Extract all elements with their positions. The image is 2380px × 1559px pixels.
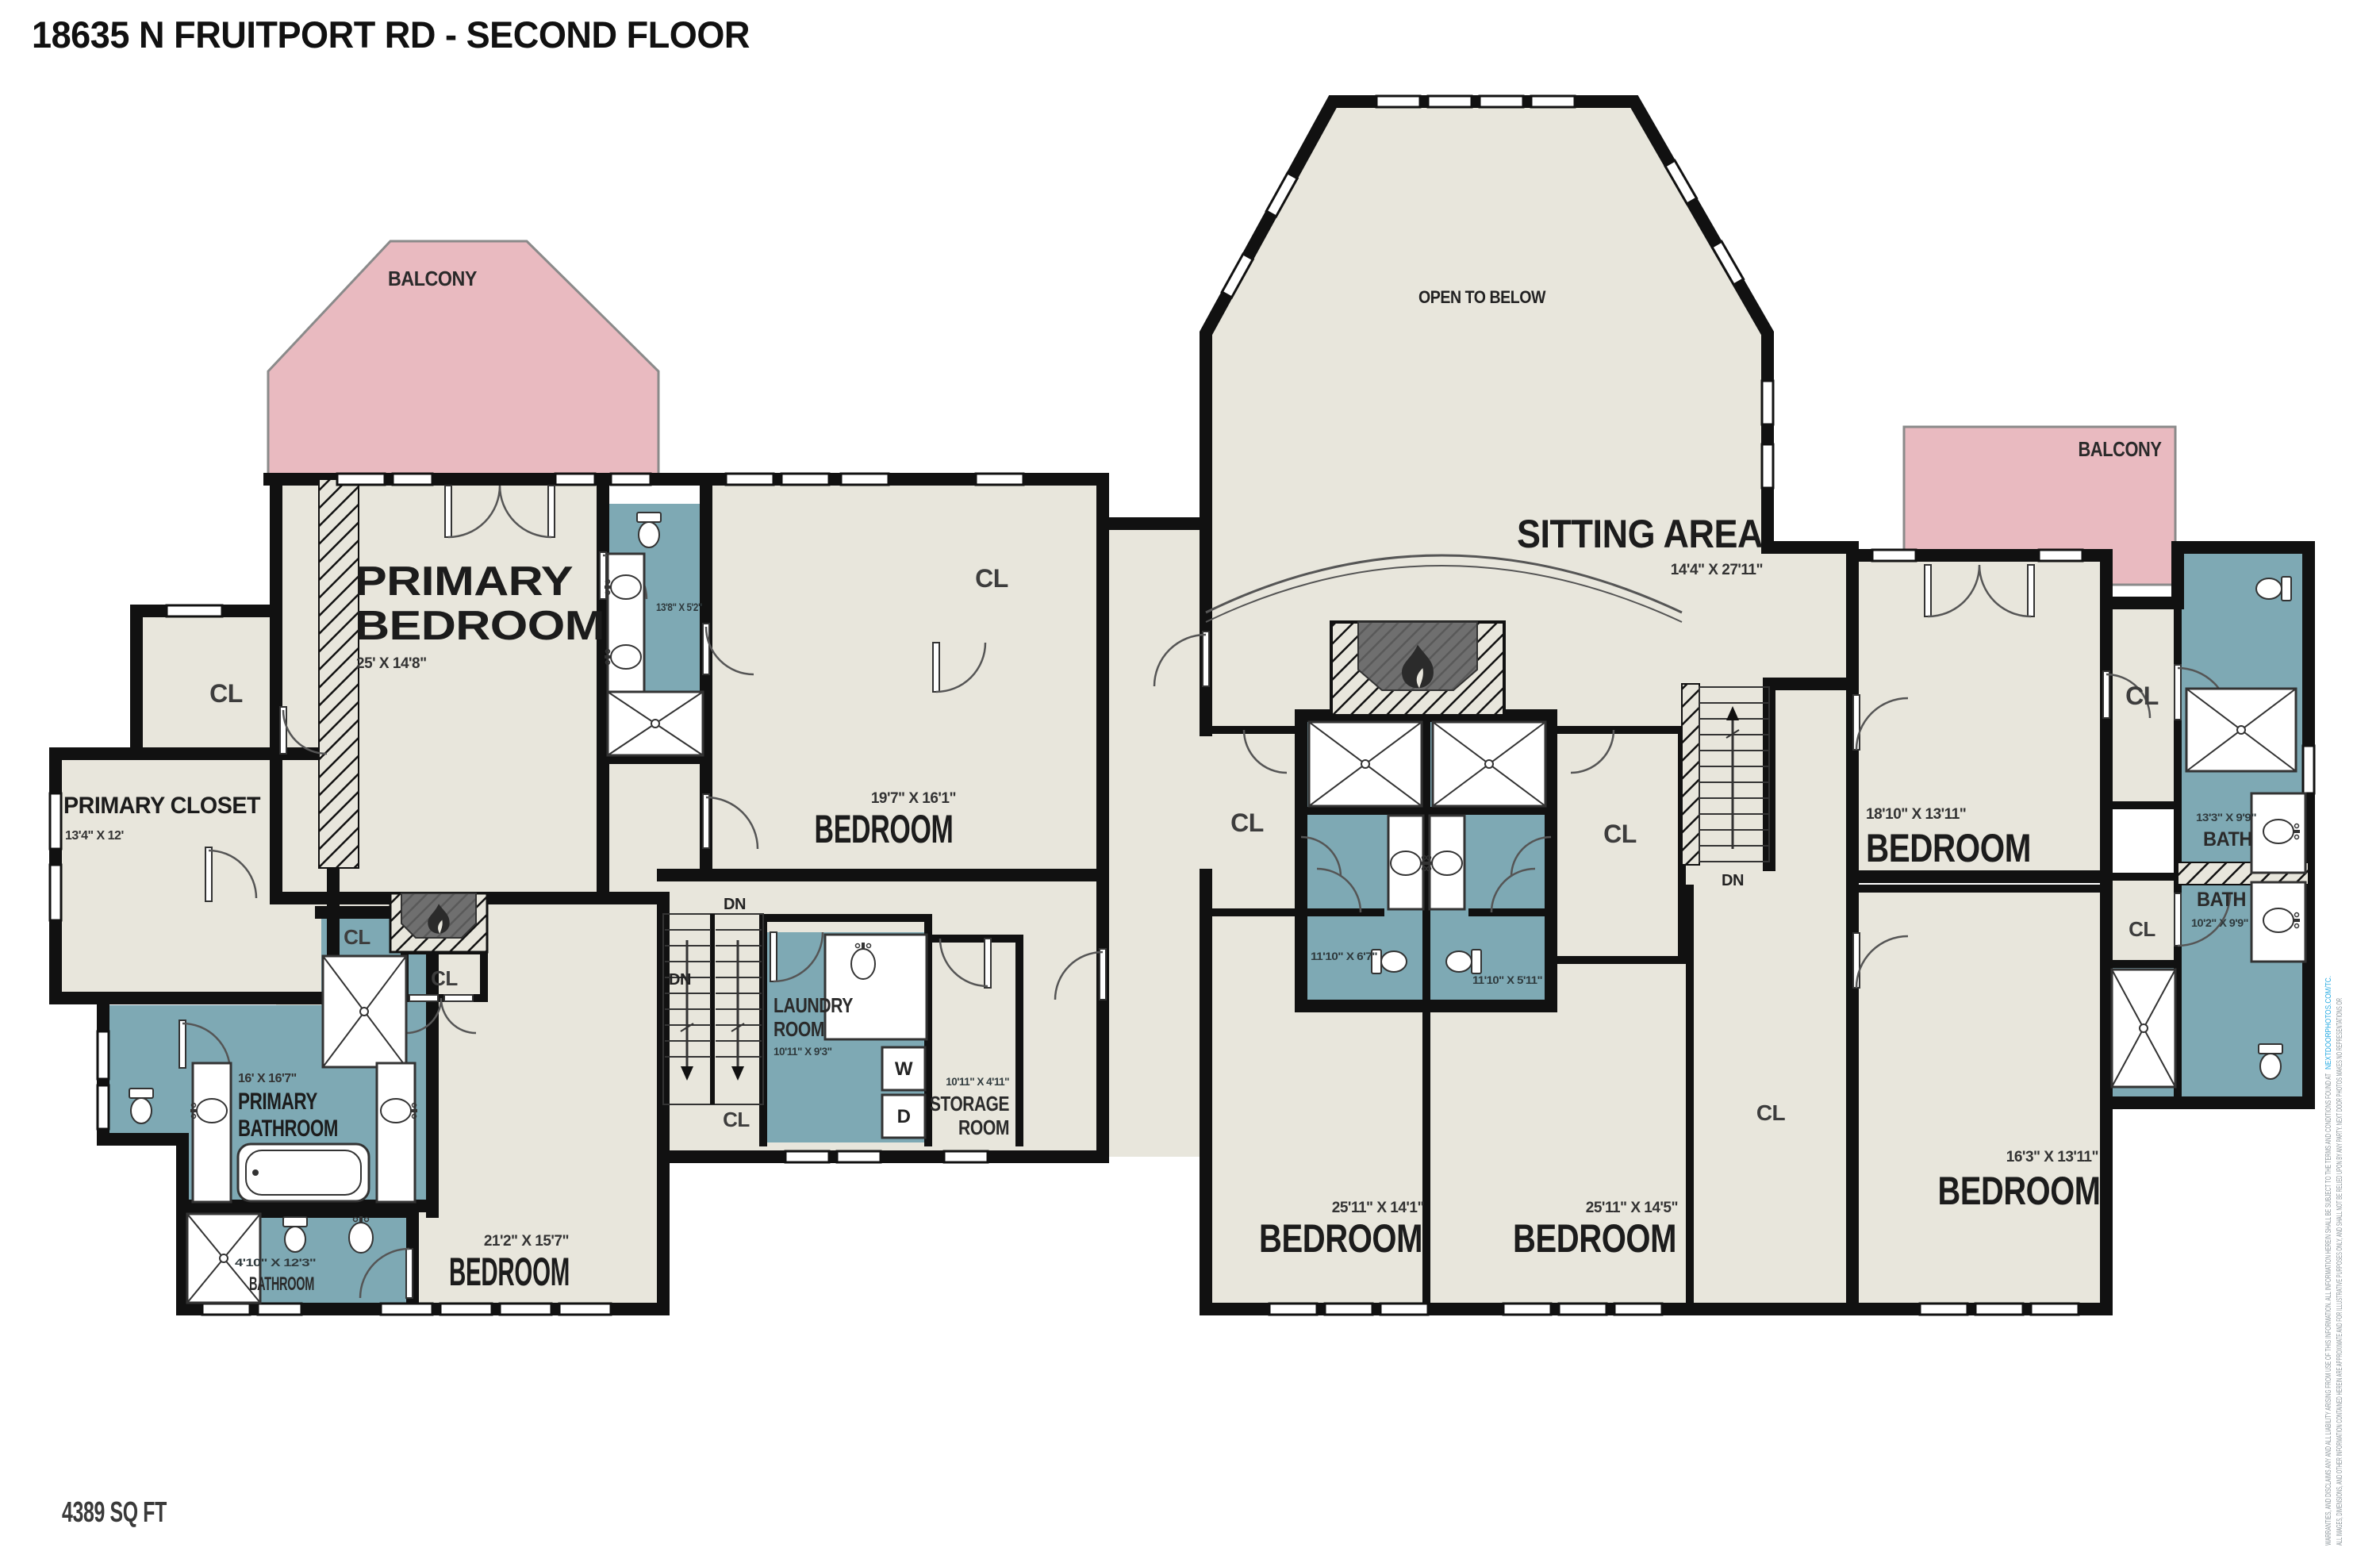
hatch-wall-left xyxy=(319,479,359,868)
ensuite-bath-dims: 13'8" X 5'2" xyxy=(656,601,702,613)
storage-label-2: ROOM xyxy=(958,1115,1009,1139)
laundry-label-2: ROOM xyxy=(773,1017,824,1041)
disclaimer-link: NEXTDOORPHOTOS.COM/TC. xyxy=(2324,976,2333,1069)
page-title: 18635 N FRUITPORT RD - SECOND FLOOR xyxy=(32,13,750,56)
bedroom-tm-dims: 19'7" X 16'1" xyxy=(871,790,956,807)
fireplace-primary xyxy=(390,893,487,952)
primary-closet-dims: 13'4" X 12' xyxy=(65,829,124,843)
cl-label: CL xyxy=(2125,682,2159,710)
storage-dims: 10'11" X 4'11" xyxy=(946,1076,1009,1088)
bedroom-bl-label: BEDROOM xyxy=(449,1250,570,1294)
cl-label: CL xyxy=(431,966,458,990)
balcony-left-label: BALCONY xyxy=(388,267,477,290)
bathtub-icon xyxy=(238,1144,369,1201)
room-bedroom-bottom-right xyxy=(1856,889,2106,1309)
bathroom-small-label: BATHROOM xyxy=(249,1273,314,1295)
laundry-counter xyxy=(825,935,927,1039)
toilet-icon xyxy=(637,513,661,547)
shower-icon xyxy=(608,692,703,755)
cl-label: CL xyxy=(1230,808,1264,837)
bedroom-bm2-label: BEDROOM xyxy=(1513,1216,1676,1261)
bath-right-lower-dims: 10'2" X 9'9" xyxy=(2191,917,2248,929)
toilet-icon xyxy=(2256,577,2291,601)
primary-bedroom-dims: 25' X 14'8" xyxy=(356,655,427,672)
bedroom-tm-label: BEDROOM xyxy=(815,807,954,851)
sitting-area-dims: 14'4" X 27'11" xyxy=(1671,562,1763,578)
vanity xyxy=(193,1063,231,1202)
fireplace-center xyxy=(1331,622,1504,716)
bath-right-upper-dims: 13'3" X 9'9" xyxy=(2196,812,2256,824)
balcony-right-label: BALCONY xyxy=(2079,437,2162,461)
shower-icon xyxy=(323,956,406,1067)
bedroom-br-dims: 16'3" X 13'11" xyxy=(2006,1149,2098,1165)
shower-icon xyxy=(2112,970,2175,1087)
washer-label: W xyxy=(895,1058,913,1080)
bedroom-bm1-dims: 25'11" X 14'1" xyxy=(1332,1200,1424,1216)
primary-closet-label: PRIMARY CLOSET xyxy=(63,793,260,819)
shower-icon xyxy=(1433,722,1545,806)
bedroom-bl-dims: 21'2" X 15'7" xyxy=(484,1233,569,1250)
storage-label-1: STORAGE xyxy=(930,1092,1009,1115)
primary-bedroom-label-2: BEDROOM xyxy=(355,603,605,649)
cl-label: CL xyxy=(975,564,1008,593)
area-label: 4389 SQ FT xyxy=(62,1496,167,1528)
bath-jj-left-dims: 11'10" X 6'7" xyxy=(1311,950,1377,962)
toilet-icon xyxy=(283,1217,307,1252)
dryer-label: D xyxy=(897,1106,911,1127)
disclaimer-line1: ALL IMAGES, DIMENSIONS, AND OTHER INFORM… xyxy=(2335,998,2344,1546)
vanity xyxy=(377,1063,415,1202)
bathroom-small-dims: 4'10" X 12'3" xyxy=(235,1257,316,1269)
bath-jj-right-dims: 11'10" X 5'11" xyxy=(1472,974,1542,986)
room-sitting-area xyxy=(1206,102,1852,1309)
toilet-icon xyxy=(129,1089,153,1123)
laundry-dims: 10'11" X 9'3" xyxy=(773,1046,832,1058)
bedroom-bm1-label: BEDROOM xyxy=(1259,1216,1422,1261)
cl-label: CL xyxy=(209,679,243,708)
hatch-wall-stairs-right xyxy=(1682,684,1699,865)
floor-plan-page: 18635 N FRUITPORT RD - SECOND FLOOR 4389… xyxy=(0,0,2380,1559)
cl-label: CL xyxy=(723,1108,750,1131)
cl-label: CL xyxy=(2129,917,2155,941)
bath-right-lower-label: BATH xyxy=(2197,889,2246,911)
floor-plan-svg: 18635 N FRUITPORT RD - SECOND FLOOR 4389… xyxy=(0,0,2380,1559)
dn-label: DN xyxy=(724,896,746,913)
corridor-floor xyxy=(1103,524,1206,1157)
toilet-icon xyxy=(2259,1044,2282,1079)
bedroom-right-dims: 18'10" X 13'11" xyxy=(1866,806,1966,823)
bath-right-upper-label: BATH xyxy=(2203,828,2252,851)
dn-label: DN xyxy=(1722,872,1744,889)
bedroom-right-label: BEDROOM xyxy=(1866,826,2031,870)
primary-bathroom-label-2: BATHROOM xyxy=(238,1115,338,1142)
primary-bathroom-label-1: PRIMARY xyxy=(238,1089,317,1115)
primary-bathroom-dims: 16' X 16'7" xyxy=(238,1072,297,1085)
shower-icon xyxy=(2186,689,2296,771)
cl-label: CL xyxy=(1603,820,1637,848)
dn-label: DN xyxy=(669,971,691,989)
cl-label: CL xyxy=(344,925,370,949)
cl-label: CL xyxy=(1756,1100,1786,1125)
disclaimer: ALL IMAGES, DIMENSIONS, AND OTHER INFORM… xyxy=(2324,976,2344,1546)
bedroom-br-label: BEDROOM xyxy=(1938,1169,2101,1213)
disclaimer-line2: WARRANTIES, AND DISCLAIMS ANY AND ALL LI… xyxy=(2324,1073,2333,1546)
sitting-area-label: SITTING AREA xyxy=(1517,512,1763,556)
bedroom-bm2-dims: 25'11" X 14'5" xyxy=(1586,1200,1678,1216)
open-to-below-label: OPEN TO BELOW xyxy=(1418,287,1546,307)
shower-icon xyxy=(1309,722,1422,806)
toilet-icon xyxy=(1446,950,1481,973)
primary-bedroom-label-1: PRIMARY xyxy=(355,559,573,605)
laundry-label-1: LAUNDRY xyxy=(773,993,853,1017)
